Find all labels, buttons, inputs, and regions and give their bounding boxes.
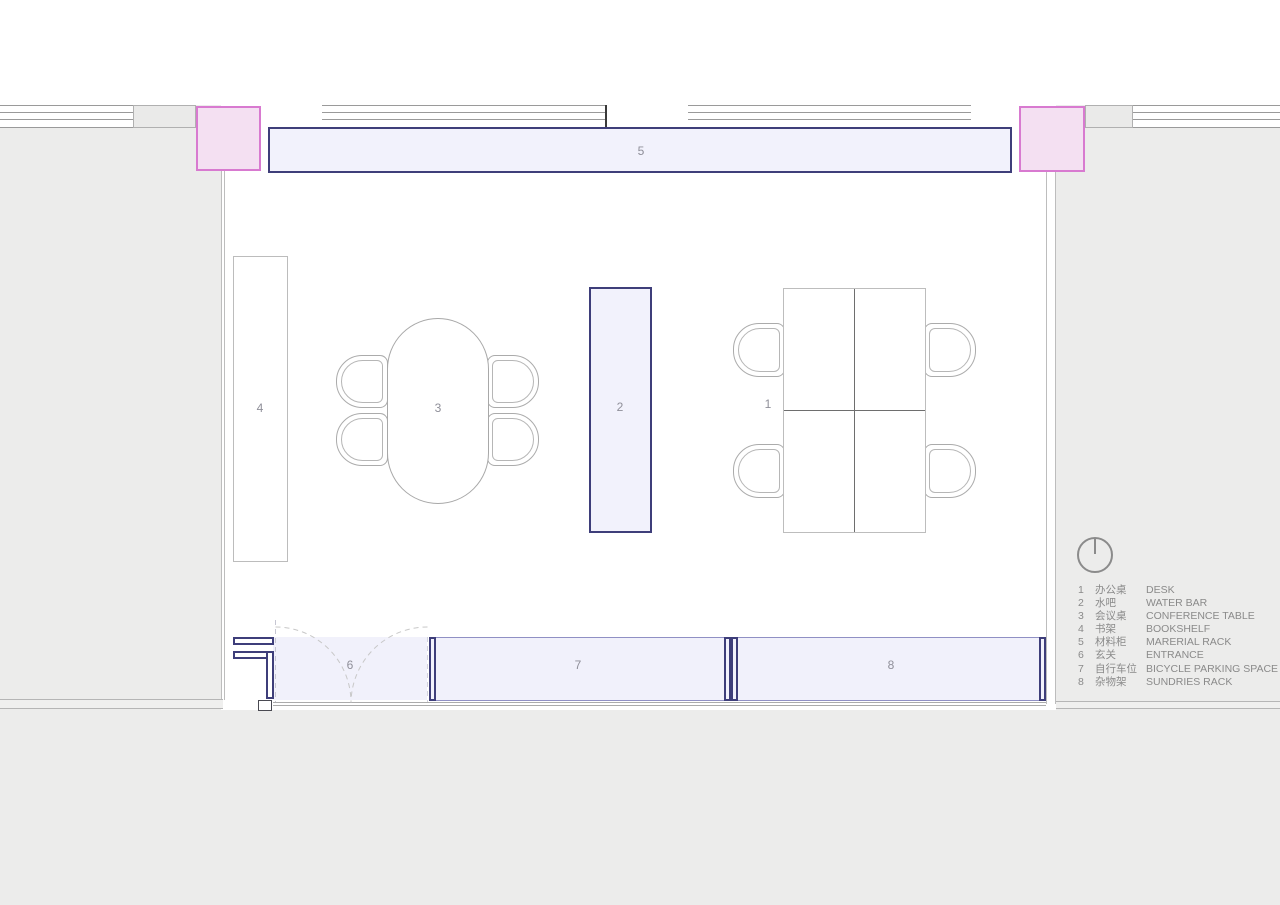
door-swing-arcs (0, 0, 1280, 905)
legend-num: 4 (1078, 623, 1095, 636)
legend-en: CONFERENCE TABLE (1146, 610, 1255, 623)
legend-row: 8 杂物架 SUNDRIES RACK (1078, 676, 1278, 689)
label-bicycle-parking-7: 7 (575, 658, 582, 672)
label-entrance-6: 6 (347, 658, 354, 672)
legend-en: WATER BAR (1146, 597, 1207, 610)
legend-cn: 自行车位 (1095, 663, 1146, 676)
legend-row: 1 办公桌 DESK (1078, 584, 1278, 597)
legend-cn: 水吧 (1095, 597, 1146, 610)
label-desk-1: 1 (765, 397, 772, 411)
legend-en: MARERIAL RACK (1146, 636, 1231, 649)
legend-cn: 材料柜 (1095, 636, 1146, 649)
label-material-rack-5: 5 (638, 144, 645, 158)
legend-en: ENTRANCE (1146, 649, 1204, 662)
legend-row: 2 水吧 WATER BAR (1078, 597, 1278, 610)
legend-cn: 书架 (1095, 623, 1146, 636)
legend-cn: 办公桌 (1095, 584, 1146, 597)
legend: 1 办公桌 DESK 2 水吧 WATER BAR 3 会议桌 CONFEREN… (1078, 584, 1278, 689)
label-sundries-rack-8: 8 (888, 658, 895, 672)
legend-row: 6 玄关 ENTRANCE (1078, 649, 1278, 662)
legend-en: DESK (1146, 584, 1175, 597)
label-bookshelf-4: 4 (257, 401, 264, 415)
legend-cn: 玄关 (1095, 649, 1146, 662)
legend-num: 5 (1078, 636, 1095, 649)
legend-num: 8 (1078, 676, 1095, 689)
legend-cn: 会议桌 (1095, 610, 1146, 623)
floor-plan-canvas: 1 2 3 4 5 6 7 8 1 办公桌 DESK 2 水吧 WATER BA… (0, 0, 1280, 905)
legend-row: 4 书架 BOOKSHELF (1078, 623, 1278, 636)
label-water-bar-2: 2 (617, 400, 624, 414)
legend-row: 5 材料柜 MARERIAL RACK (1078, 636, 1278, 649)
legend-en: BICYCLE PARKING SPACE (1146, 663, 1278, 676)
north-indicator-icon (1077, 537, 1113, 573)
label-conference-3: 3 (435, 401, 442, 415)
legend-en: SUNDRIES RACK (1146, 676, 1232, 689)
legend-cn: 杂物架 (1095, 676, 1146, 689)
legend-num: 1 (1078, 584, 1095, 597)
legend-row: 7 自行车位 BICYCLE PARKING SPACE (1078, 663, 1278, 676)
legend-num: 3 (1078, 610, 1095, 623)
legend-num: 7 (1078, 663, 1095, 676)
legend-row: 3 会议桌 CONFERENCE TABLE (1078, 610, 1278, 623)
legend-num: 6 (1078, 649, 1095, 662)
legend-en: BOOKSHELF (1146, 623, 1210, 636)
legend-num: 2 (1078, 597, 1095, 610)
